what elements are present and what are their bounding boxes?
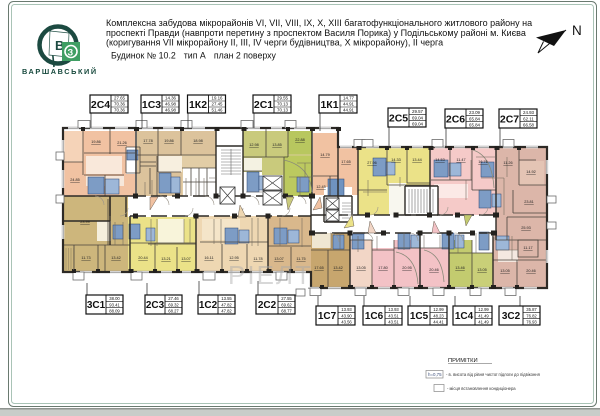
svg-text:20.46: 20.46	[526, 269, 536, 273]
svg-text:24.85: 24.85	[70, 178, 80, 182]
svg-text:76.93: 76.93	[526, 320, 537, 325]
svg-text:41.49: 41.49	[478, 313, 489, 318]
svg-text:1С2: 1С2	[199, 300, 218, 311]
svg-text:2С3: 2С3	[146, 300, 165, 311]
svg-text:13.93: 13.93	[341, 307, 352, 312]
svg-text:43.51: 43.51	[388, 320, 399, 325]
svg-text:70.36: 70.36	[114, 102, 126, 107]
svg-text:19.16: 19.16	[212, 96, 224, 101]
svg-text:- в. висота від рівня чистої п: - в. висота від рівня чистої підлоги до …	[446, 372, 540, 377]
svg-text:47.82: 47.82	[221, 309, 232, 314]
svg-text:ВАРШАВСЬКИЙ: ВАРШАВСЬКИЙ	[22, 67, 98, 76]
svg-text:65.84: 65.84	[469, 116, 481, 121]
svg-text:16.76: 16.76	[478, 160, 488, 164]
svg-text:N: N	[572, 23, 582, 38]
svg-text:13.85: 13.85	[272, 143, 282, 147]
svg-text:19.86: 19.86	[164, 139, 174, 143]
svg-text:43.51: 43.51	[388, 313, 399, 318]
svg-text:проспекті Правди (навпроти пер: проспекті Правди (навпроти перетину з пр…	[106, 28, 526, 38]
svg-text:2С2: 2С2	[258, 300, 277, 311]
svg-text:3С1: 3С1	[87, 300, 106, 311]
svg-text:РІЕЛТ: РІЕЛТ	[228, 260, 313, 290]
svg-text:47.82: 47.82	[221, 302, 232, 307]
svg-text:13.07: 13.07	[181, 257, 191, 261]
svg-text:69.04: 69.04	[412, 122, 424, 127]
svg-text:2С1: 2С1	[254, 99, 273, 111]
svg-text:93.41: 93.41	[109, 302, 120, 307]
svg-text:35.87: 35.87	[526, 307, 537, 312]
svg-text:23.99: 23.99	[80, 220, 90, 224]
svg-text:44.91: 44.91	[343, 108, 355, 113]
svg-text:69.32: 69.32	[168, 302, 179, 307]
svg-text:69.62: 69.62	[281, 302, 292, 307]
svg-text:11.17: 11.17	[523, 246, 532, 250]
svg-text:65.84: 65.84	[469, 123, 481, 128]
svg-text:43.90: 43.90	[341, 313, 352, 318]
svg-text:16.11: 16.11	[204, 256, 213, 260]
svg-text:38.00: 38.00	[109, 296, 120, 301]
svg-text:12.45: 12.45	[316, 185, 326, 189]
svg-text:14.53: 14.53	[435, 158, 445, 162]
svg-text:2С4: 2С4	[91, 99, 110, 111]
svg-text:22.88: 22.88	[295, 138, 305, 142]
svg-text:Будинок № 10.2тип Аплан 2 пове: Будинок № 10.2тип Аплан 2 поверху	[111, 51, 277, 61]
svg-text:70.13: 70.13	[277, 108, 289, 113]
svg-text:Комплексна забудова мікрорайон: Комплексна забудова мікрорайонів VI, VII…	[106, 18, 532, 28]
svg-text:2С7: 2С7	[500, 113, 519, 125]
svg-text:23.81: 23.81	[524, 200, 534, 204]
svg-text:12.99: 12.99	[478, 307, 489, 312]
svg-text:1С7: 1С7	[318, 311, 337, 322]
svg-text:29.57: 29.57	[412, 109, 424, 114]
svg-text:18.98: 18.98	[193, 139, 203, 143]
svg-text:88.09: 88.09	[109, 309, 120, 314]
svg-text:70.13: 70.13	[277, 102, 289, 107]
svg-text:2С6: 2С6	[446, 113, 465, 125]
svg-text:27.65: 27.65	[114, 96, 126, 101]
svg-text:13.42: 13.42	[333, 266, 343, 270]
svg-text:69.04: 69.04	[412, 115, 424, 120]
svg-text:14.92: 14.92	[526, 170, 536, 174]
svg-text:44.41: 44.41	[433, 320, 444, 325]
svg-text:17.65: 17.65	[341, 160, 351, 164]
svg-text:13.05: 13.05	[500, 269, 510, 273]
svg-text:14.36: 14.36	[165, 96, 177, 101]
svg-text:13.93: 13.93	[388, 307, 399, 312]
svg-text:24.93: 24.93	[523, 110, 535, 115]
svg-text:29.55: 29.55	[277, 96, 289, 101]
svg-text:17.80: 17.80	[378, 266, 388, 270]
svg-text:(коригування VII мікрорайону I: (коригування VII мікрорайону II, III, IV…	[106, 38, 443, 48]
svg-text:1С5: 1С5	[410, 311, 429, 322]
svg-text:68.77: 68.77	[281, 309, 292, 314]
svg-text:11.47: 11.47	[456, 158, 465, 162]
svg-text:17.65: 17.65	[314, 266, 324, 270]
svg-text:13.42: 13.42	[111, 256, 121, 260]
svg-text:14.33: 14.33	[391, 158, 401, 162]
svg-text:- місця встановлення кондиціон: - місця встановлення кондиціонера	[447, 386, 516, 391]
svg-text:62.11: 62.11	[523, 116, 534, 121]
svg-text:20.46: 20.46	[429, 268, 439, 272]
svg-text:12.95: 12.95	[229, 256, 239, 260]
svg-text:11.26: 11.26	[503, 161, 512, 165]
svg-text:51.46: 51.46	[212, 108, 224, 113]
svg-text:1С4: 1С4	[455, 311, 474, 322]
svg-text:3С2: 3С2	[502, 311, 521, 322]
svg-text:ПРИМІТКИ: ПРИМІТКИ	[448, 358, 478, 364]
svg-text:46.98: 46.98	[165, 102, 177, 107]
svg-text:25.93: 25.93	[521, 226, 531, 230]
svg-text:11.75: 11.75	[296, 257, 305, 261]
svg-text:14.77: 14.77	[343, 96, 355, 101]
svg-text:41.49: 41.49	[478, 320, 489, 325]
svg-text:1К1: 1К1	[320, 99, 338, 111]
svg-text:76.82: 76.82	[526, 313, 537, 318]
svg-text:14.79: 14.79	[320, 153, 330, 157]
svg-text:11.73: 11.73	[81, 256, 90, 260]
svg-text:27.46: 27.46	[168, 296, 179, 301]
svg-text:44.91: 44.91	[343, 102, 355, 107]
svg-text:h=0,75: h=0,75	[428, 372, 442, 377]
svg-text:12.98: 12.98	[249, 143, 259, 147]
svg-text:20.44: 20.44	[138, 256, 148, 260]
svg-text:23.09: 23.09	[469, 110, 481, 115]
svg-text:17.78: 17.78	[143, 139, 153, 143]
svg-text:66.58: 66.58	[523, 123, 535, 128]
svg-text:12.99: 12.99	[433, 307, 444, 312]
svg-text:27.45: 27.45	[212, 102, 224, 107]
svg-text:13.05: 13.05	[477, 268, 487, 272]
svg-text:13.44: 13.44	[412, 158, 422, 162]
svg-text:1К2: 1К2	[189, 99, 207, 111]
svg-text:13.55: 13.55	[221, 296, 232, 301]
svg-text:13.07: 13.07	[274, 257, 284, 261]
svg-text:11.78: 11.78	[253, 257, 262, 261]
svg-text:27.55: 27.55	[281, 296, 292, 301]
svg-text:1С3: 1С3	[142, 99, 161, 111]
svg-text:70.36: 70.36	[114, 108, 126, 113]
svg-text:2С5: 2С5	[389, 112, 408, 124]
svg-text:19.86: 19.86	[91, 140, 101, 144]
svg-text:68.27: 68.27	[168, 309, 179, 314]
svg-text:1С6: 1С6	[365, 311, 384, 322]
svg-text:З: З	[68, 48, 74, 58]
svg-text:13.46: 13.46	[455, 266, 465, 270]
svg-text:21.26: 21.26	[117, 141, 127, 145]
svg-text:46.98: 46.98	[165, 108, 177, 113]
svg-text:13.21: 13.21	[161, 257, 171, 261]
svg-text:27.96: 27.96	[367, 161, 377, 165]
svg-text:43.56: 43.56	[341, 320, 352, 325]
svg-text:20.95: 20.95	[402, 266, 412, 270]
svg-text:48.23: 48.23	[433, 313, 444, 318]
svg-text:13.05: 13.05	[356, 266, 366, 270]
